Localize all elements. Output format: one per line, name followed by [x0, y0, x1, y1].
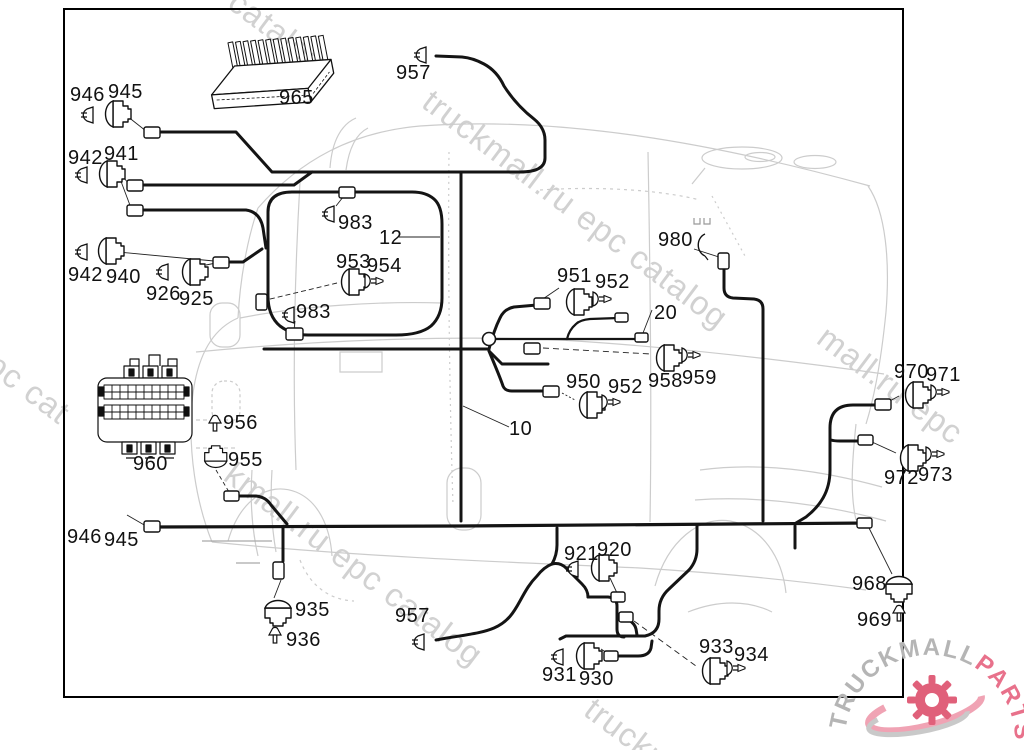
part-label-925[interactable]: 925 [179, 288, 214, 311]
terminal-lug [286, 328, 303, 340]
part-label-951[interactable]: 951 [557, 265, 592, 288]
connector-936-icon [269, 627, 281, 643]
part-label-957[interactable]: 957 [395, 605, 430, 628]
connector-957-top-icon [414, 47, 426, 63]
terminal-lug [858, 435, 873, 445]
part-label-20[interactable]: 20 [654, 302, 677, 325]
connector-946-top-icon [81, 107, 93, 123]
part-label-920[interactable]: 920 [597, 539, 632, 562]
part-label-956[interactable]: 956 [223, 412, 258, 435]
part-label-935[interactable]: 935 [295, 599, 330, 622]
part-label-972[interactable]: 972 [884, 467, 919, 490]
terminal-lug [611, 592, 625, 602]
terminal-lug [127, 180, 143, 191]
connector-957-bottom-icon [412, 634, 424, 650]
part-label-960[interactable]: 960 [133, 453, 168, 476]
part-label-921[interactable]: 921 [564, 543, 599, 566]
connector-935-icon [265, 601, 291, 627]
part-label-953[interactable]: 953 [336, 251, 371, 274]
part-label-952[interactable]: 952 [595, 271, 630, 294]
part-label-983[interactable]: 983 [296, 301, 331, 324]
terminal-block-965-icon [202, 24, 338, 120]
part-label-933[interactable]: 933 [699, 636, 734, 659]
part-label-941[interactable]: 941 [104, 143, 139, 166]
connector-951-icon [567, 289, 593, 315]
connector-945-top-icon [106, 101, 132, 127]
terminal-lug [256, 294, 267, 310]
connector-983-top-icon [322, 206, 334, 222]
connector-926-icon [156, 264, 168, 280]
terminal-lug [635, 333, 648, 342]
terminal-lug [604, 651, 618, 661]
part-label-970[interactable]: 970 [894, 361, 929, 384]
part-label-12[interactable]: 12 [379, 227, 402, 250]
callout-line [274, 580, 281, 598]
callout-line [872, 442, 896, 453]
terminals [127, 127, 891, 661]
logo-text-parts: PARTS [970, 650, 1024, 743]
part-label-10[interactable]: 10 [509, 418, 532, 441]
truckmall-parts-logo: TRUCKMALLPARTS [790, 600, 1024, 750]
connector-971-icon [931, 385, 949, 399]
truck-wiring-diagram: c catalog truckmall.ru epc catalog kmall… [0, 0, 1024, 750]
part-label-954[interactable]: 954 [367, 255, 402, 278]
connector-940-icon [99, 238, 125, 264]
terminal-lug [857, 518, 872, 528]
callout-line [463, 406, 509, 427]
connector-968-icon [886, 577, 912, 603]
callout-line [266, 283, 337, 300]
part-label-968[interactable]: 968 [852, 573, 887, 596]
part-label-958[interactable]: 958 [648, 370, 683, 393]
part-label-931[interactable]: 931 [542, 664, 577, 687]
terminal-lug [619, 612, 633, 622]
terminal-lug [144, 521, 160, 532]
wiring-harness [143, 56, 884, 656]
part-label-957[interactable]: 957 [396, 62, 431, 85]
callout-line [543, 348, 651, 354]
connector-933-icon [703, 658, 729, 684]
part-label-942[interactable]: 942 [68, 264, 103, 287]
terminal-lug [543, 386, 559, 397]
logo-gear-icon [907, 675, 957, 725]
part-label-945[interactable]: 945 [104, 529, 139, 552]
part-label-980[interactable]: 980 [658, 229, 693, 252]
callout-line [634, 621, 696, 666]
terminal-lug [339, 187, 355, 198]
callout-line [562, 393, 575, 400]
part-label-971[interactable]: 971 [926, 364, 961, 387]
terminal-lug [875, 399, 891, 410]
part-label-934[interactable]: 934 [734, 644, 769, 667]
part-label-955[interactable]: 955 [228, 449, 263, 472]
ring-terminal [483, 333, 496, 346]
part-label-936[interactable]: 936 [286, 629, 321, 652]
part-label-946[interactable]: 946 [67, 526, 102, 549]
connector-925-icon [183, 259, 209, 285]
callout-line [869, 528, 892, 574]
part-label-946[interactable]: 946 [70, 84, 105, 107]
part-label-942[interactable]: 942 [68, 147, 103, 170]
connector-931-icon [551, 649, 563, 665]
terminal-lug [718, 253, 729, 269]
part-label-950[interactable]: 950 [566, 371, 601, 394]
connector-950-icon [580, 392, 606, 418]
part-label-952[interactable]: 952 [608, 376, 643, 399]
terminal-lug [273, 562, 284, 579]
part-label-965[interactable]: 965 [279, 87, 314, 110]
terminal-lug [615, 313, 628, 322]
terminal-lug [224, 491, 239, 501]
part-label-983[interactable]: 983 [338, 212, 373, 235]
connector-block-960-icon [98, 355, 192, 458]
terminal-lug [524, 343, 540, 354]
callout-line [127, 515, 146, 526]
connector-973-icon [926, 447, 944, 461]
connector-983-mid-icon [282, 307, 294, 323]
callout-line [216, 470, 229, 492]
connector-952-a-icon [593, 292, 611, 306]
part-label-973[interactable]: 973 [918, 464, 953, 487]
connector-955-icon [205, 446, 227, 468]
terminal-lug [534, 298, 550, 309]
connector-942-mid-icon [75, 244, 87, 260]
terminal-lug [127, 205, 143, 216]
part-label-940[interactable]: 940 [106, 266, 141, 289]
connector-980-icon [698, 234, 708, 260]
terminal-lug [144, 127, 160, 138]
part-label-945[interactable]: 945 [108, 81, 143, 104]
terminal-lug [213, 257, 229, 268]
connector-956-icon [209, 415, 221, 431]
part-label-930[interactable]: 930 [579, 668, 614, 691]
connector-930-icon [577, 643, 603, 669]
part-label-926[interactable]: 926 [146, 283, 181, 306]
callout-line [610, 578, 617, 593]
part-label-959[interactable]: 959 [682, 367, 717, 390]
